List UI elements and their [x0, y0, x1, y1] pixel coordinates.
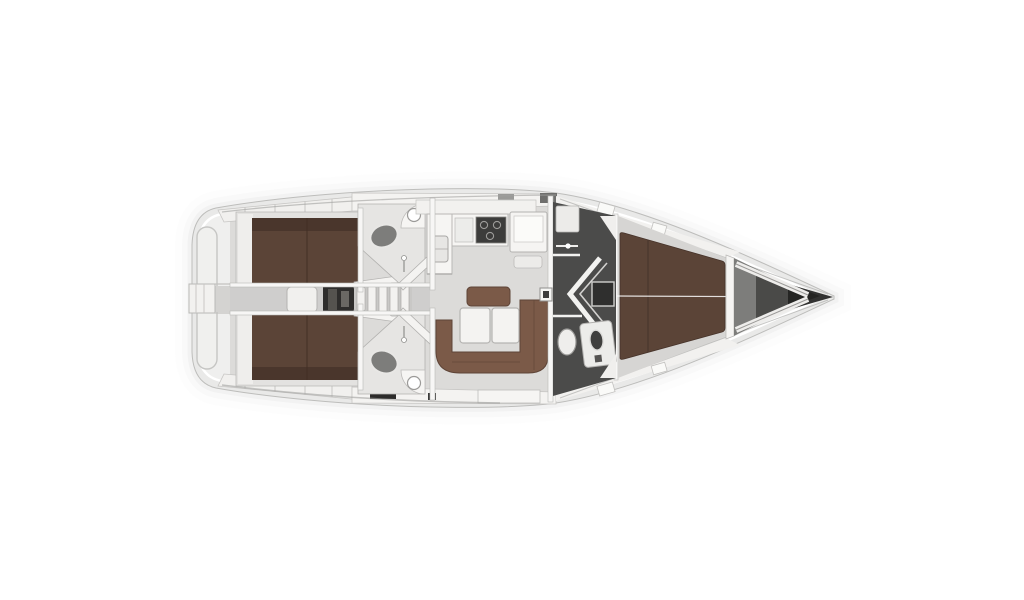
- boarding-gate: [478, 390, 540, 403]
- swim-ladder: [189, 284, 215, 313]
- floor-plan-canvas: [0, 0, 1024, 600]
- engine-detail: [328, 289, 337, 310]
- door-handle: [565, 243, 570, 248]
- aft-cabin-port: [236, 212, 362, 292]
- aft-cabin-starboard: [236, 306, 362, 386]
- step: [379, 284, 387, 314]
- forward-bulkhead: [726, 255, 734, 339]
- yacht-floor-plan: [0, 0, 1024, 600]
- chart-table-lid: [514, 216, 543, 242]
- saloon-table: [460, 308, 490, 343]
- forward-head: [553, 202, 617, 396]
- cabin-shelf: [238, 308, 253, 384]
- saloon-table: [492, 308, 519, 343]
- sink-bowl: [408, 377, 421, 390]
- shower-shelf: [592, 282, 614, 306]
- engine-block: [323, 284, 354, 315]
- cabin-shelf: [238, 214, 253, 290]
- worktop: [455, 218, 473, 242]
- berth-pillows: [252, 367, 358, 380]
- toilet: [558, 329, 576, 355]
- nav-station: [510, 212, 547, 268]
- step: [368, 286, 376, 313]
- head-locker: [556, 206, 579, 232]
- saloon-bench: [467, 287, 510, 306]
- nav-seat: [514, 256, 542, 268]
- shower-mixer: [402, 256, 407, 261]
- mast-step: [540, 288, 552, 301]
- engine-detail: [341, 291, 349, 307]
- berth-pillows: [252, 218, 358, 231]
- shower-mixer: [402, 338, 407, 343]
- engine-box-cover: [287, 287, 317, 312]
- faucet: [594, 355, 602, 363]
